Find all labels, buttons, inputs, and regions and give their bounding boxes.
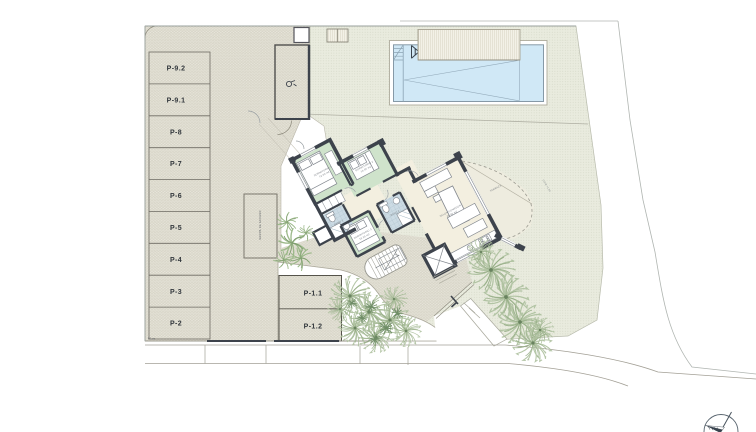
svg-text:P-6: P-6: [170, 193, 182, 200]
svg-text:P-3: P-3: [170, 289, 182, 296]
svg-text:P-2: P-2: [170, 321, 182, 328]
svg-text:P-8: P-8: [170, 129, 182, 136]
svg-text:P.1 ac: P.1 ac: [148, 337, 156, 341]
svg-text:P-4: P-4: [170, 257, 182, 264]
svg-text:P-9.2: P-9.2: [167, 66, 186, 73]
svg-text:P-5: P-5: [170, 225, 182, 232]
svg-text:RAMPA DE ACCESO: RAMPA DE ACCESO: [259, 210, 262, 240]
svg-text:P-1.2: P-1.2: [304, 324, 323, 331]
svg-text:P-9.1: P-9.1: [167, 97, 186, 104]
svg-text:P-7: P-7: [170, 161, 182, 168]
svg-text:P-1.1: P-1.1: [304, 291, 323, 298]
